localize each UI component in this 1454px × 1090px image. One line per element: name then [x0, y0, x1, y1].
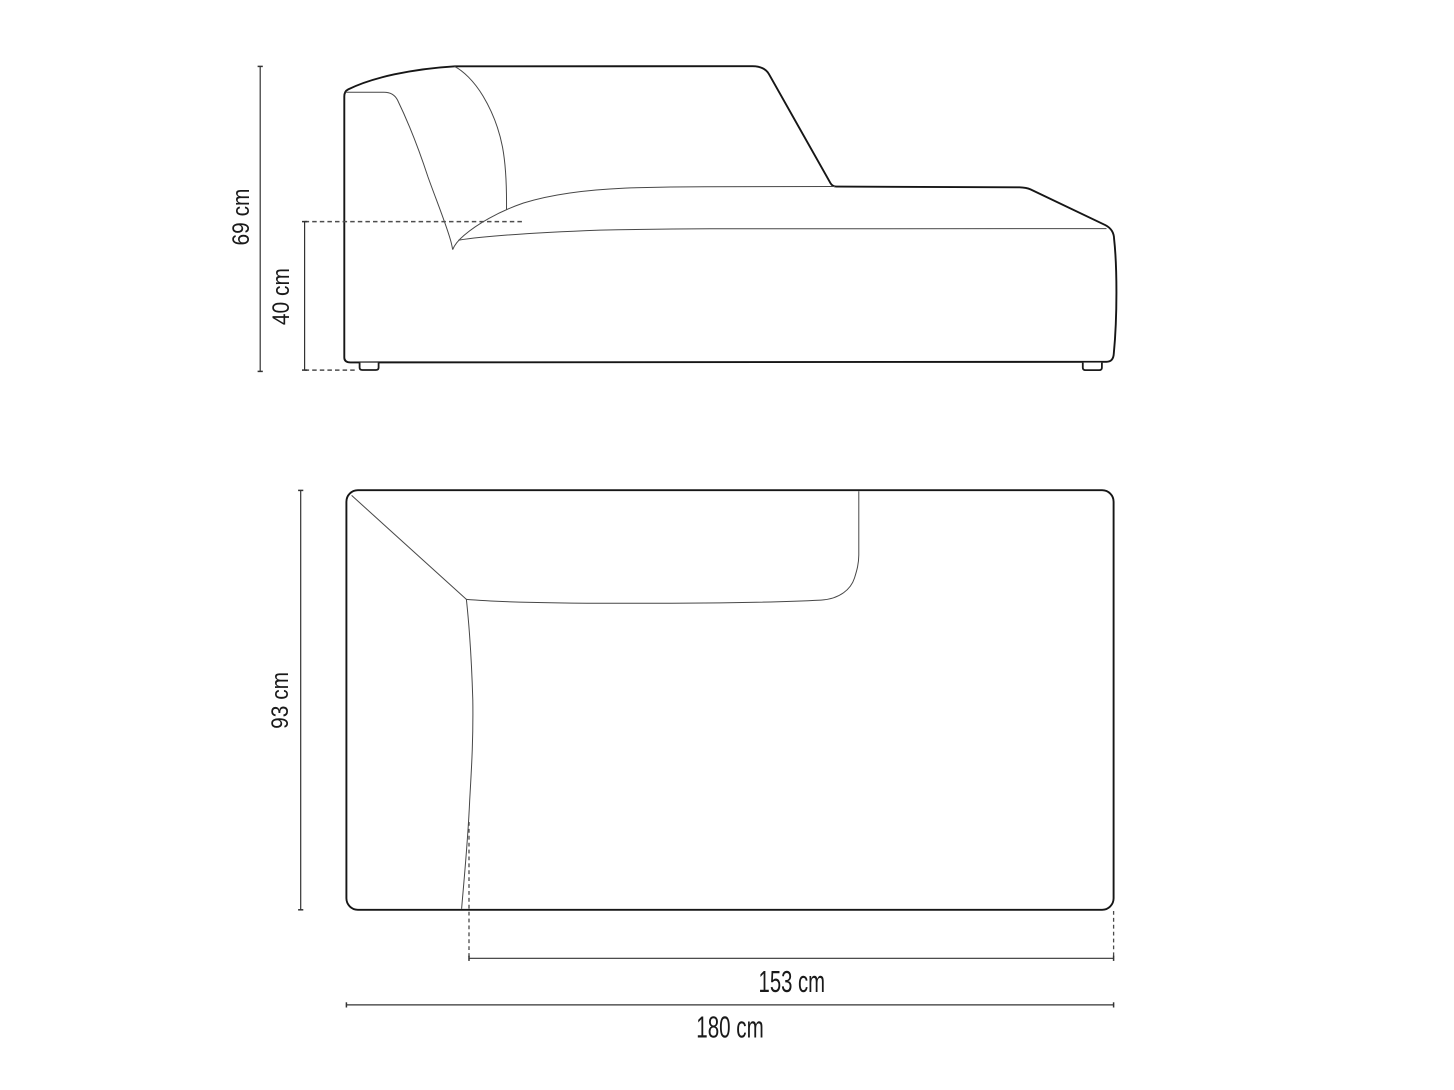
svg-text:69 cm: 69 cm — [228, 189, 255, 246]
svg-text:93 cm: 93 cm — [267, 672, 294, 729]
svg-text:153 cm: 153 cm — [759, 964, 826, 999]
svg-text:180 cm: 180 cm — [696, 1009, 764, 1044]
svg-text:40 cm: 40 cm — [268, 268, 295, 325]
